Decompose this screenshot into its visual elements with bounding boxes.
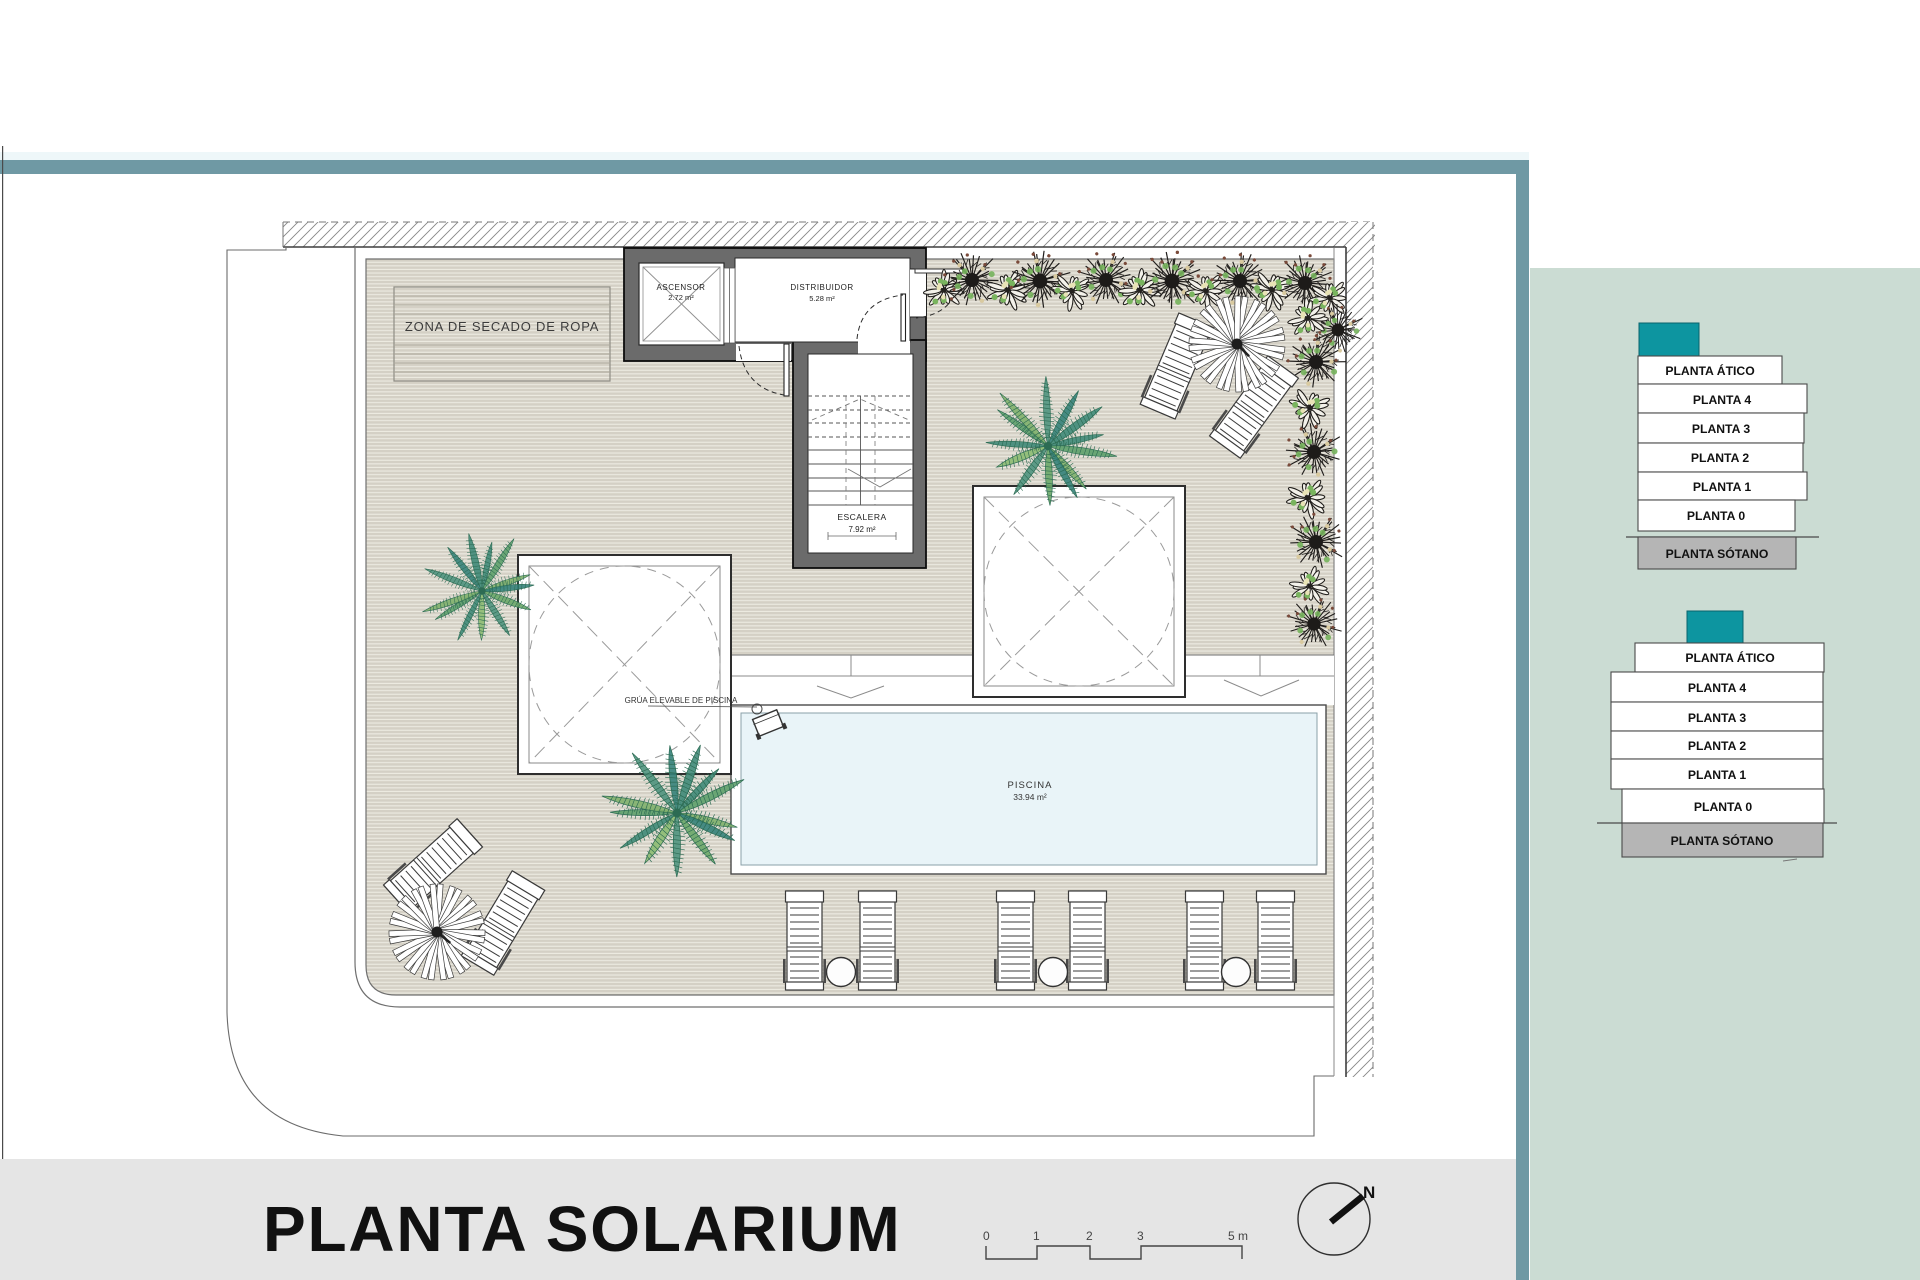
svg-text:PISCINA: PISCINA	[1007, 780, 1052, 791]
svg-text:PLANTA ÁTICO: PLANTA ÁTICO	[1665, 363, 1754, 378]
svg-text:PLANTA 1: PLANTA 1	[1688, 768, 1746, 782]
svg-text:PLANTA SÓTANO: PLANTA SÓTANO	[1671, 833, 1774, 848]
svg-text:ZONA DE SECADO DE ROPA: ZONA DE SECADO DE ROPA	[405, 319, 599, 334]
svg-text:DISTRIBUIDOR: DISTRIBUIDOR	[790, 283, 853, 292]
svg-text:2: 2	[1086, 1229, 1093, 1243]
svg-text:5 m: 5 m	[1228, 1229, 1248, 1243]
svg-text:3: 3	[1137, 1229, 1144, 1243]
svg-text:PLANTA SÓTANO: PLANTA SÓTANO	[1666, 546, 1769, 561]
svg-text:PLANTA 2: PLANTA 2	[1688, 739, 1746, 753]
svg-text:PLANTA 0: PLANTA 0	[1694, 800, 1752, 814]
svg-text:N: N	[1363, 1183, 1375, 1202]
svg-text:ASCENSOR: ASCENSOR	[657, 283, 706, 292]
svg-text:5.28 m²: 5.28 m²	[809, 294, 835, 303]
svg-text:1: 1	[1033, 1229, 1040, 1243]
svg-text:PLANTA 1: PLANTA 1	[1693, 480, 1751, 494]
svg-text:7.92 m²: 7.92 m²	[848, 525, 875, 534]
svg-text:PLANTA 3: PLANTA 3	[1688, 711, 1746, 725]
svg-text:0: 0	[983, 1229, 990, 1243]
svg-text:33.94 m²: 33.94 m²	[1013, 792, 1047, 802]
svg-text:2.72 m²: 2.72 m²	[668, 293, 694, 302]
svg-text:ESCALERA: ESCALERA	[837, 512, 886, 522]
svg-text:PLANTA 4: PLANTA 4	[1693, 393, 1751, 407]
svg-text:PLANTA ÁTICO: PLANTA ÁTICO	[1685, 650, 1774, 665]
svg-text:PLANTA 0: PLANTA 0	[1687, 509, 1745, 523]
svg-text:PLANTA SOLARIUM: PLANTA SOLARIUM	[263, 1193, 902, 1265]
svg-text:PLANTA 3: PLANTA 3	[1692, 422, 1750, 436]
svg-text:GRÚA ELEVABLE DE PISCINA: GRÚA ELEVABLE DE PISCINA	[625, 696, 738, 705]
svg-text:PLANTA 4: PLANTA 4	[1688, 681, 1746, 695]
svg-text:PLANTA 2: PLANTA 2	[1691, 451, 1749, 465]
